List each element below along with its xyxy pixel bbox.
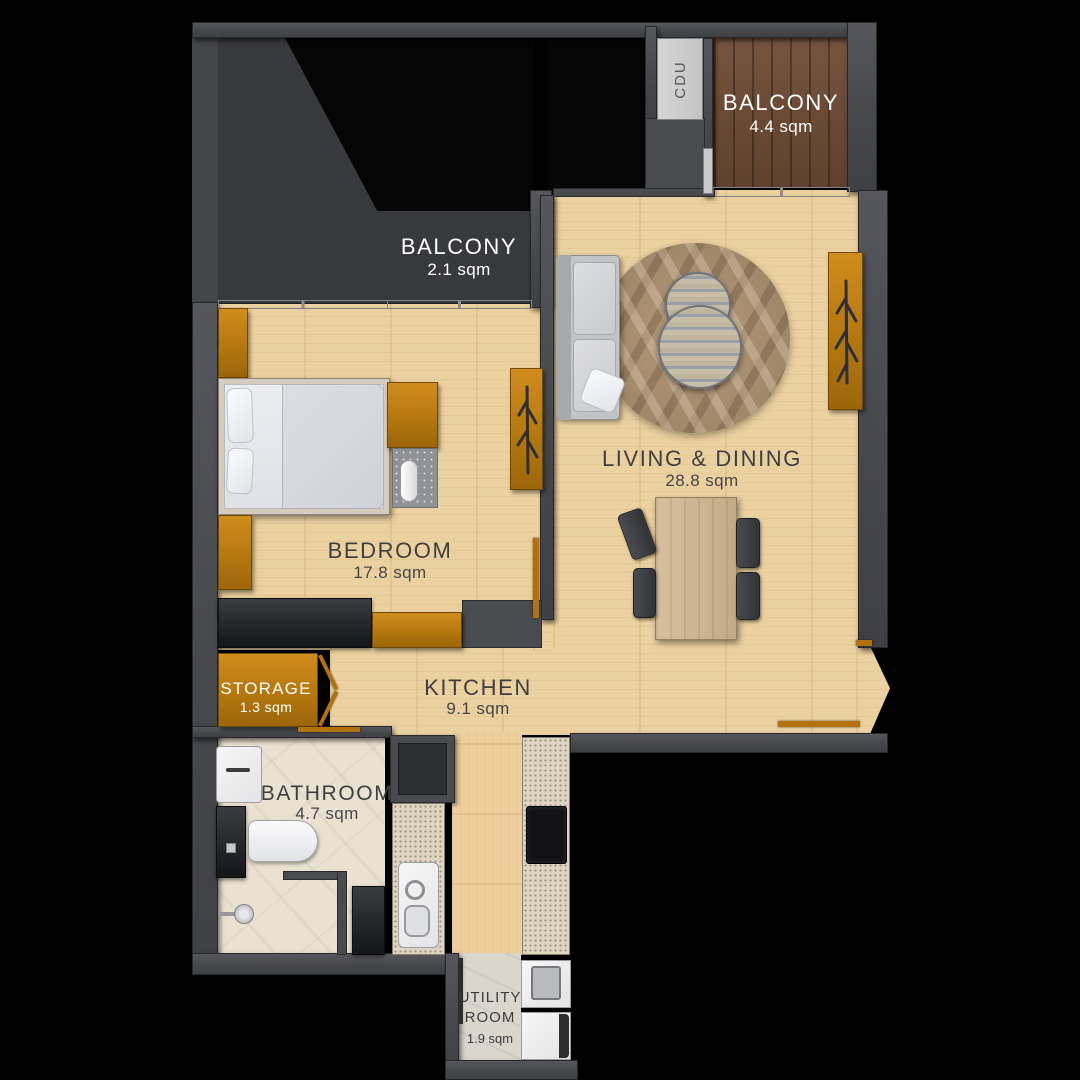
shower-partition-v bbox=[337, 871, 347, 955]
shower-partition-h bbox=[283, 871, 341, 880]
balcony-upper-railing bbox=[713, 187, 850, 197]
bed-blanket bbox=[282, 384, 384, 509]
sofa-cushion bbox=[573, 262, 616, 335]
dining-chair bbox=[736, 518, 760, 568]
cdu-unit: CDU bbox=[657, 38, 703, 120]
bedroom-cabinet-topleft bbox=[218, 308, 248, 378]
wall-below-cdu bbox=[645, 118, 705, 196]
stove bbox=[526, 806, 567, 864]
room-label-living-dining: LIVING & DINING bbox=[602, 446, 802, 472]
bathroom-vanity bbox=[216, 806, 246, 878]
bathroom-sink-detail bbox=[226, 768, 250, 772]
balcony-door-panel bbox=[703, 148, 713, 194]
shower-head-icon bbox=[234, 904, 254, 924]
cdu-label: CDU bbox=[672, 60, 689, 99]
room-label-utility: UTILITY ROOM 1.9 sqm bbox=[442, 988, 538, 1046]
dining-chair bbox=[633, 568, 656, 618]
shadow-overlay-right bbox=[453, 23, 533, 211]
room-label-kitchen: KITCHEN bbox=[424, 675, 532, 701]
wall-top bbox=[192, 22, 850, 38]
room-area-balcony-upper: 4.4 sqm bbox=[749, 117, 812, 137]
room-area-bedroom: 17.8 sqm bbox=[353, 563, 426, 583]
wall-bathroom-bottom bbox=[192, 953, 457, 975]
shower-knob bbox=[226, 843, 236, 853]
wall-right-balcony bbox=[847, 22, 877, 192]
bedroom-door-leaf bbox=[533, 538, 539, 618]
bedroom-cabinet-bottom bbox=[372, 612, 462, 648]
kitchen-faucet bbox=[405, 880, 425, 900]
nightstand bbox=[387, 382, 438, 448]
living-top-edge bbox=[553, 188, 715, 197]
wall-living-bottom bbox=[570, 733, 888, 753]
room-area-bathroom: 4.7 sqm bbox=[295, 804, 358, 824]
exterior-notch bbox=[548, 38, 645, 192]
room-label-bathroom: BATHROOM bbox=[261, 782, 394, 806]
bed-pillow bbox=[226, 447, 254, 494]
plant-icon bbox=[511, 369, 544, 491]
refrigerator-top bbox=[398, 743, 447, 795]
bathroom-sink bbox=[216, 746, 262, 803]
utility-room-name: UTILITY ROOM bbox=[442, 988, 538, 1029]
wall-left bbox=[192, 302, 218, 975]
toilet bbox=[248, 820, 318, 862]
bathroom-door-leaf bbox=[298, 727, 360, 732]
sofa-backrest bbox=[556, 255, 571, 420]
room-area-balcony-lower: 2.1 sqm bbox=[427, 260, 490, 280]
kitchen-corridor-floor bbox=[452, 733, 522, 955]
utility-room-area: 1.9 sqm bbox=[442, 1031, 538, 1046]
dining-chair bbox=[736, 572, 760, 620]
wall-bathroom-top bbox=[192, 726, 392, 738]
entry-bay-floor bbox=[856, 645, 890, 735]
room-area-storage: 1.3 sqm bbox=[240, 699, 293, 715]
utility-appliance-edge bbox=[559, 1014, 569, 1058]
room-label-storage: STORAGE bbox=[220, 679, 311, 699]
wall-bedroom-bottom-right bbox=[462, 600, 542, 648]
entry-door-leaf bbox=[778, 721, 860, 727]
room-label-bedroom: BEDROOM bbox=[328, 538, 453, 564]
bedroom-console bbox=[510, 368, 543, 490]
entry-door-jamb-tick bbox=[856, 640, 872, 646]
bathroom-cabinet bbox=[352, 886, 385, 955]
bedroom-wardrobe-left bbox=[218, 515, 252, 590]
room-area-kitchen: 9.1 sqm bbox=[446, 699, 509, 719]
wall-utility-bottom bbox=[445, 1060, 578, 1080]
room-area-living-dining: 28.8 sqm bbox=[665, 471, 738, 491]
floor-plan: CDU bbox=[0, 0, 1080, 1080]
kitchen-sink-basin bbox=[404, 905, 430, 937]
coffee-table-large bbox=[658, 305, 742, 389]
living-console bbox=[828, 252, 863, 410]
bed-pillow bbox=[226, 388, 254, 444]
plant-icon bbox=[829, 253, 864, 411]
wall-cdu-left-stub bbox=[645, 26, 657, 122]
bedroom-closet bbox=[218, 598, 372, 648]
balcony-lower-railing bbox=[387, 300, 532, 309]
room-label-balcony-lower: BALCONY bbox=[401, 234, 517, 260]
table-lamp bbox=[400, 460, 418, 502]
adjacent-unit-wall-strip bbox=[192, 22, 218, 304]
room-label-balcony-upper: BALCONY bbox=[723, 90, 839, 116]
dining-table bbox=[655, 497, 737, 640]
